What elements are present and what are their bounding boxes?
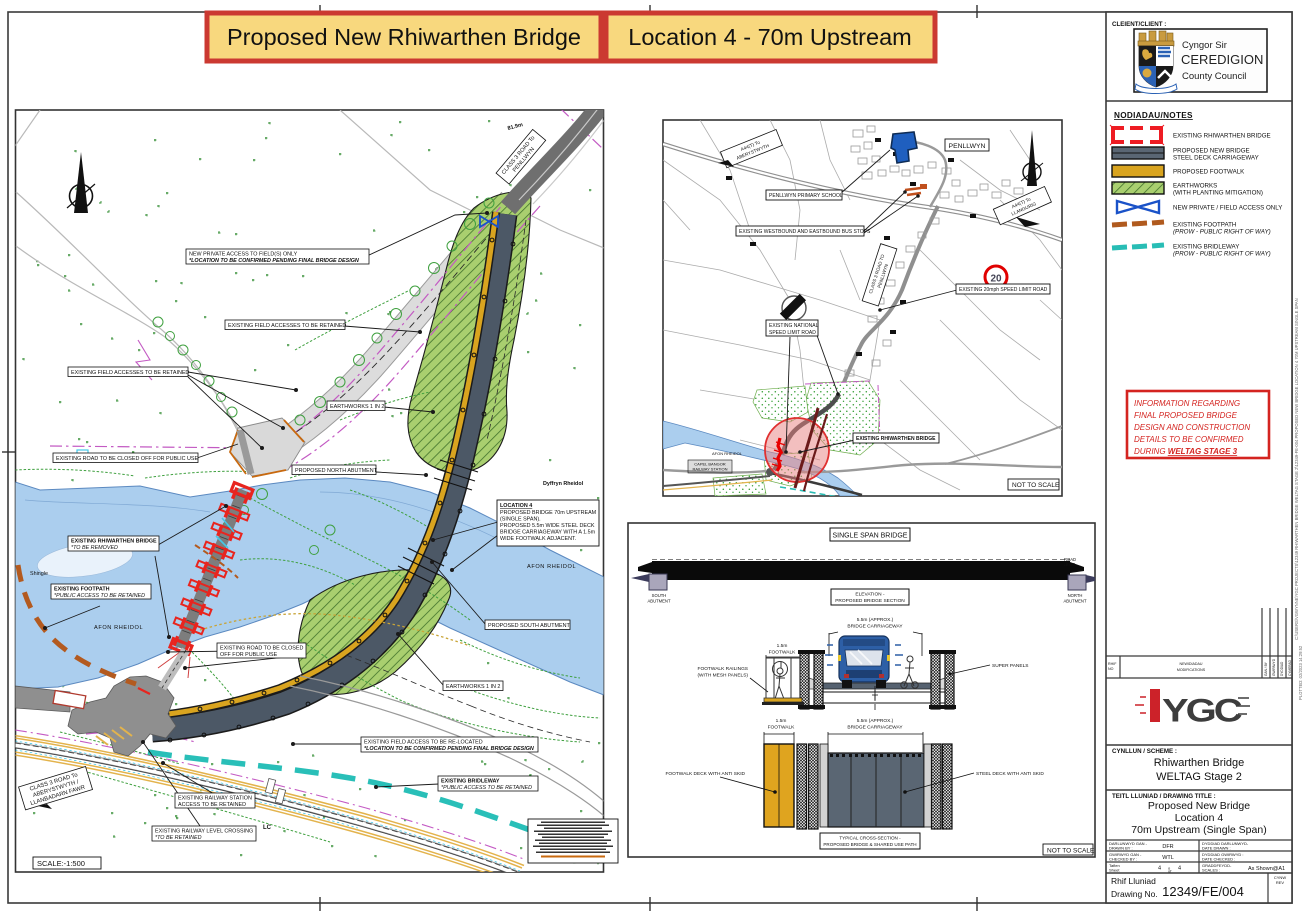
svg-text:EXISTING RHIWARTHEN BRIDGE: EXISTING RHIWARTHEN BRIDGE <box>71 539 157 545</box>
svg-text:Rhif Lluniad: Rhif Lluniad <box>1111 876 1156 886</box>
svg-text:PLOTTED: 02/2023 14:29:52: PLOTTED: 02/2023 14:29:52 <box>1298 645 1303 700</box>
svg-text:YGC: YGC <box>1162 692 1242 729</box>
svg-text:TEITL LLUNIAD / DRAWING TITLE: TEITL LLUNIAD / DRAWING TITLE : <box>1112 793 1216 800</box>
svg-text:SCALE:-1:500: SCALE:-1:500 <box>37 859 85 868</box>
svg-text:BRIDGE CARRIAGEWAY WITH A 1.5m: BRIDGE CARRIAGEWAY WITH A 1.5m <box>500 530 596 536</box>
svg-text:EXISTING BRIDLEWAY: EXISTING BRIDLEWAY <box>441 779 500 785</box>
svg-text:AFON RHEIDOL: AFON RHEIDOL <box>94 625 143 631</box>
svg-text:PROPOSED NORTH ABUTMENT: PROPOSED NORTH ABUTMENT <box>295 468 378 474</box>
svg-text:ABUTMENT: ABUTMENT <box>1063 599 1086 604</box>
svg-text:*LOCATION TO BE CONFIRMED PEND: *LOCATION TO BE CONFIRMED PENDING FINAL … <box>189 258 359 264</box>
svg-text:5.5m (APPROX.): 5.5m (APPROX.) <box>857 617 894 623</box>
svg-text:CLEIENT/CLIENT :: CLEIENT/CLIENT : <box>1112 21 1166 28</box>
svg-text:FOOTWALK: FOOTWALK <box>769 650 797 656</box>
svg-text:CEREDIGION: CEREDIGION <box>1181 52 1263 67</box>
svg-text:Proposed New Rhiwarthen Bridge: Proposed New Rhiwarthen Bridge <box>227 24 581 50</box>
svg-text:DATE CHECKED :: DATE CHECKED : <box>1202 857 1235 862</box>
svg-text:CYNLLUN / SCHEME :: CYNLLUN / SCHEME : <box>1112 748 1177 755</box>
svg-text:PENLLWYN PRIMARY SCHOOL: PENLLWYN PRIMARY SCHOOL <box>769 193 843 199</box>
svg-text:EXISTING NATIONAL: EXISTING NATIONAL <box>769 323 819 329</box>
svg-text:EXISTING RHIWARTHEN BRIDGE: EXISTING RHIWARTHEN BRIDGE <box>856 436 936 442</box>
svg-text:*TO BE REMOVED: *TO BE REMOVED <box>71 545 118 551</box>
svg-text:ELEVATION -: ELEVATION - <box>855 592 885 598</box>
svg-text:4: 4 <box>1178 866 1181 872</box>
svg-text:(PROW - PUBLIC RIGHT OF WAY): (PROW - PUBLIC RIGHT OF WAY) <box>1173 229 1271 236</box>
svg-text:LC: LC <box>263 825 272 831</box>
svg-text:CHECKED BY :: CHECKED BY : <box>1109 857 1137 862</box>
svg-text:WELTAG Stage 2: WELTAG Stage 2 <box>1156 771 1242 783</box>
svg-text:NOT TO SCALE: NOT TO SCALE <box>1012 482 1060 489</box>
svg-text:Location 4: Location 4 <box>1175 812 1224 824</box>
svg-text:EXISTING 20mph SPEED LIMIT ROA: EXISTING 20mph SPEED LIMIT ROAD <box>959 287 1048 293</box>
svg-text:1.5m: 1.5m <box>777 643 788 649</box>
svg-text:LEVEL: LEVEL <box>1063 562 1077 567</box>
svg-text:EXISTING FIELD ACCESSES TO BE: EXISTING FIELD ACCESSES TO BE RETAINED <box>228 323 346 329</box>
svg-text:SPEED LIMIT ROAD: SPEED LIMIT ROAD <box>769 330 816 336</box>
svg-text:DATE DRAWN :: DATE DRAWN : <box>1202 846 1231 851</box>
svg-text:(SINGLE SPAN).: (SINGLE SPAN). <box>500 517 541 523</box>
svg-text:WIDE FOOTWALK ADJACENT.: WIDE FOOTWALK ADJACENT. <box>500 536 576 542</box>
svg-text:REV: REV <box>1276 880 1285 885</box>
svg-text:*PUBLIC ACCESS TO BE RETAINED: *PUBLIC ACCESS TO BE RETAINED <box>441 785 532 791</box>
svg-text:SUPER PANELS: SUPER PANELS <box>992 663 1028 669</box>
svg-text:PROPOSED BRIDGE & SHARED USE P: PROPOSED BRIDGE & SHARED USE PATH <box>823 842 916 847</box>
svg-text:County Council: County Council <box>1182 71 1246 82</box>
svg-text:TYPICAL CROSS-SECTION -: TYPICAL CROSS-SECTION - <box>839 836 901 841</box>
svg-text:PENLLWYN: PENLLWYN <box>949 143 986 150</box>
svg-text:1.5m: 1.5m <box>776 718 787 724</box>
svg-text:NOT TO SCALE: NOT TO SCALE <box>1047 848 1095 855</box>
svg-text:LOCATION 4: LOCATION 4 <box>500 503 532 509</box>
svg-text:*PUBLIC ACCESS TO BE RETAINED: *PUBLIC ACCESS TO BE RETAINED <box>54 593 145 599</box>
svg-text:Dyffryn Rheidol: Dyffryn Rheidol <box>543 481 584 487</box>
svg-text:Shingle: Shingle <box>30 571 48 577</box>
svg-text:STEEL DECK WITH ANTI SKID: STEEL DECK WITH ANTI SKID <box>976 771 1044 777</box>
svg-text:PROPOSED BRIDGE SECTION: PROPOSED BRIDGE SECTION <box>835 598 905 604</box>
svg-text:As Shown@A1: As Shown@A1 <box>1248 866 1285 872</box>
svg-text:Drawing No.: Drawing No. <box>1111 889 1158 899</box>
svg-text:DETAILS TO BE CONFIRMED: DETAILS TO BE CONFIRMED <box>1134 435 1244 444</box>
svg-text:(PROW - PUBLIC RIGHT OF WAY): (PROW - PUBLIC RIGHT OF WAY) <box>1173 251 1271 258</box>
svg-text:EXISTING RAILWAY STATION: EXISTING RAILWAY STATION <box>178 796 252 802</box>
svg-text:SCALES :: SCALES : <box>1202 868 1220 873</box>
svg-text:EARTHWORKS 1 IN 2: EARTHWORKS 1 IN 2 <box>330 404 384 410</box>
svg-text:EXISTING WESTBOUND AND EASTBOU: EXISTING WESTBOUND AND EASTBOUND BUS STO… <box>739 229 871 235</box>
svg-text:NEWIDIADAU: NEWIDIADAU <box>1180 662 1203 666</box>
svg-text:EXISTING RHIWARTHEN BRIDGE: EXISTING RHIWARTHEN BRIDGE <box>1173 133 1271 140</box>
svg-text:Sheet: Sheet <box>1109 868 1120 873</box>
svg-text:INFORMATION REGARDING: INFORMATION REGARDING <box>1134 399 1240 408</box>
svg-text:NODIADAU/NOTES: NODIADAU/NOTES <box>1114 111 1193 120</box>
svg-text:Proposed New Bridge: Proposed New Bridge <box>1148 800 1250 812</box>
svg-text:ACCESS TO BE RETAINED: ACCESS TO BE RETAINED <box>178 802 246 808</box>
svg-text:STEEL DECK CARRIAGEWAY: STEEL DECK CARRIAGEWAY <box>1173 155 1259 162</box>
svg-text:EXISTING BRIDLEWAY: EXISTING BRIDLEWAY <box>1173 244 1239 251</box>
svg-text:DFR: DFR <box>1162 844 1173 850</box>
svg-text:PROPOSED NEW BRIDGE: PROPOSED NEW BRIDGE <box>1173 148 1250 155</box>
svg-text:C:\USERS\VGWYNNE\YGC PROJECTS\: C:\USERS\VGWYNNE\YGC PROJECTS\12349 RHIW… <box>1294 298 1299 640</box>
svg-text:EXISTING FIELD ACCESSES TO BE: EXISTING FIELD ACCESSES TO BE RETAINED <box>71 370 189 376</box>
svg-text:(WITH MESH PANELS): (WITH MESH PANELS) <box>697 673 748 679</box>
svg-text:EARTHWORKS 1 IN 2: EARTHWORKS 1 IN 2 <box>446 684 500 690</box>
svg-text:BRIDGE CARRIAGEWAY: BRIDGE CARRIAGEWAY <box>847 725 903 731</box>
svg-text:RHIF: RHIF <box>1108 662 1117 666</box>
svg-text:RAILWAY STATION: RAILWAY STATION <box>692 467 727 472</box>
svg-text:EARTHWORKS: EARTHWORKS <box>1173 183 1217 190</box>
svg-text:NO: NO <box>1108 667 1114 671</box>
svg-text:AFON RHEIDOL: AFON RHEIDOL <box>527 564 576 570</box>
svg-text:PROPOSED FOOTWALK: PROPOSED FOOTWALK <box>1173 169 1245 176</box>
svg-text:12349/FE/004: 12349/FE/004 <box>1162 884 1244 899</box>
svg-text:*TO BE RETAINED: *TO BE RETAINED <box>155 835 202 841</box>
svg-text:NORTH: NORTH <box>1068 593 1083 598</box>
svg-text:NEW PRIVATE / FIELD ACCESS ONL: NEW PRIVATE / FIELD ACCESS ONLY <box>1173 205 1282 212</box>
svg-text:5.5m (APPROX.): 5.5m (APPROX.) <box>857 718 894 724</box>
svg-text:ABUTMENT: ABUTMENT <box>647 599 670 604</box>
svg-text:DYDDIAD: DYDDIAD <box>1280 661 1284 676</box>
svg-text:GAN / BY: GAN / BY <box>1264 661 1268 676</box>
svg-text:FINAL PROPOSED BRIDGE: FINAL PROPOSED BRIDGE <box>1134 411 1238 420</box>
svg-text:DURING WELTAG STAGE 3: DURING WELTAG STAGE 3 <box>1134 447 1238 456</box>
svg-text:OFF FOR PUBLIC USE: OFF FOR PUBLIC USE <box>220 652 278 658</box>
svg-text:PROPOSED 5.5m WIDE STEEL DECK: PROPOSED 5.5m WIDE STEEL DECK <box>500 523 595 529</box>
svg-text:EXISTING ROAD TO BE CLOSED: EXISTING ROAD TO BE CLOSED <box>220 646 303 652</box>
svg-text:CYMERAD: CYMERAD <box>1288 659 1292 676</box>
svg-text:EXISTING FIELD ACCESS TO BE RE: EXISTING FIELD ACCESS TO BE RE-LOCATED <box>364 740 483 746</box>
svg-text:AFON RHEIDOL: AFON RHEIDOL <box>712 451 743 456</box>
svg-text:70m Upstream (Single Span): 70m Upstream (Single Span) <box>1131 824 1266 836</box>
svg-text:FOOTWALK: FOOTWALK <box>768 725 796 731</box>
svg-text:*LOCATION TO BE CONFIRMED PEND: *LOCATION TO BE CONFIRMED PENDING FINAL … <box>364 746 534 752</box>
svg-text:FOOTWALK RAILINGS: FOOTWALK RAILINGS <box>698 666 748 672</box>
svg-text:SINGLE SPAN BRIDGE: SINGLE SPAN BRIDGE <box>833 533 908 540</box>
svg-text:Cyngor Sir: Cyngor Sir <box>1182 40 1227 51</box>
svg-text:MODIFICATIONS: MODIFICATIONS <box>1177 668 1206 672</box>
svg-text:GWIRIWYD: GWIRIWYD <box>1272 658 1276 676</box>
svg-text:DESIGN AND CONSTRUCTION: DESIGN AND CONSTRUCTION <box>1134 423 1250 432</box>
svg-text:EXISTING FOOTPATH: EXISTING FOOTPATH <box>54 587 110 593</box>
svg-text:20: 20 <box>990 274 1002 285</box>
svg-text:PROPOSED BRIDGE 70m UPSTREAM: PROPOSED BRIDGE 70m UPSTREAM <box>500 510 597 516</box>
svg-text:EXISTING RAILWAY LEVEL CROSSIN: EXISTING RAILWAY LEVEL CROSSING <box>155 829 253 835</box>
svg-text:Location 4 - 70m Upstream: Location 4 - 70m Upstream <box>628 24 911 50</box>
svg-text:NEW PRIVATE ACCESS TO FIELD(S): NEW PRIVATE ACCESS TO FIELD(S) ONLY <box>189 252 298 258</box>
svg-text:Rhiwarthen Bridge: Rhiwarthen Bridge <box>1154 757 1245 769</box>
svg-text:EXISTING FOOTPATH: EXISTING FOOTPATH <box>1173 222 1236 229</box>
svg-text:(WITH PLANTING MITIGATION): (WITH PLANTING MITIGATION) <box>1173 190 1263 197</box>
svg-text:PROPOSED SOUTH ABUTMENT: PROPOSED SOUTH ABUTMENT <box>488 623 570 629</box>
svg-text:4: 4 <box>1158 866 1161 872</box>
svg-text:EXISTING ROAD TO BE CLOSED OFF: EXISTING ROAD TO BE CLOSED OFF FOR PUBLI… <box>56 456 198 462</box>
svg-text:WTL: WTL <box>1162 855 1174 861</box>
svg-text:FOOTWALK DECK WITH ANTI SKID: FOOTWALK DECK WITH ANTI SKID <box>665 771 745 777</box>
svg-text:BRIDGE CARRIAGEWAY: BRIDGE CARRIAGEWAY <box>847 624 903 630</box>
svg-text:SOUTH: SOUTH <box>652 593 667 598</box>
svg-text:DRAWN BY :: DRAWN BY : <box>1109 846 1133 851</box>
